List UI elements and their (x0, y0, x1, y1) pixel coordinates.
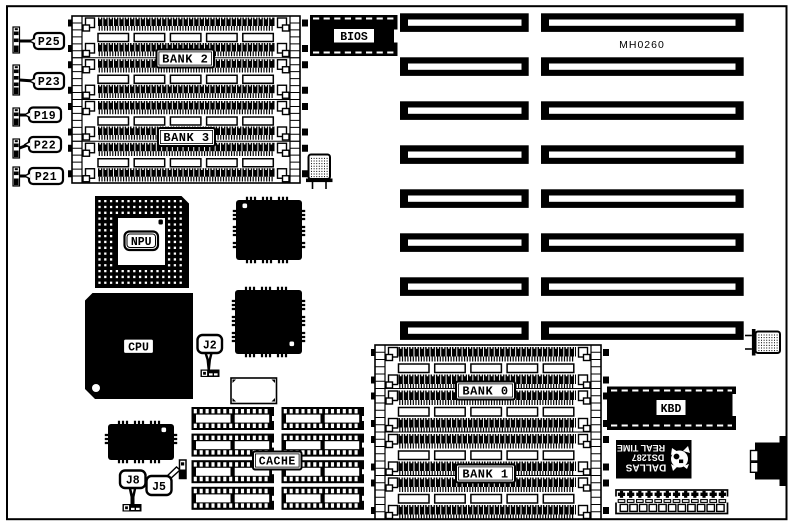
svg-text:P21: P21 (35, 171, 57, 184)
svg-text:BANK 1: BANK 1 (462, 468, 508, 482)
svg-text:NPU: NPU (131, 236, 152, 249)
svg-text:DS1287: DS1287 (632, 453, 665, 463)
svg-text:BANK 0: BANK 0 (462, 385, 508, 399)
svg-text:P25: P25 (38, 36, 60, 49)
svg-text:CACHE: CACHE (259, 456, 296, 469)
svg-text:MH0260: MH0260 (619, 39, 665, 51)
svg-text:J2: J2 (203, 340, 217, 353)
svg-text:BANK 2: BANK 2 (162, 53, 208, 67)
svg-text:J8: J8 (126, 475, 140, 488)
svg-text:REAL TIME: REAL TIME (617, 443, 665, 453)
svg-text:P19: P19 (34, 110, 56, 123)
svg-text:KBD: KBD (661, 403, 682, 416)
svg-text:J5: J5 (152, 481, 166, 494)
svg-text:BIOS: BIOS (340, 31, 368, 44)
svg-text:BANK 3: BANK 3 (163, 131, 209, 145)
svg-text:P22: P22 (34, 140, 56, 153)
svg-text:P23: P23 (38, 76, 60, 89)
svg-text:CPU: CPU (128, 342, 149, 355)
